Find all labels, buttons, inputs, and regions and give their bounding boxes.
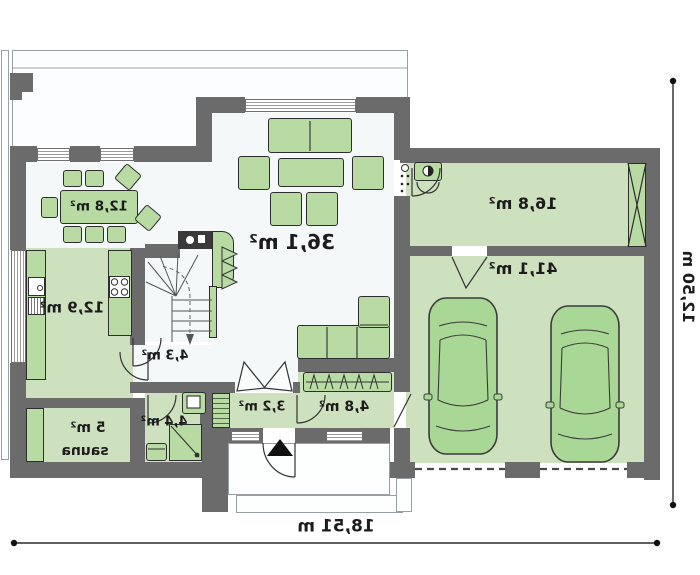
depth-dimension-label: 12,50 m bbox=[680, 251, 696, 324]
wall-bottom-corner bbox=[627, 462, 660, 478]
wall-kitchen-sauna bbox=[10, 398, 135, 408]
window-left-wall bbox=[11, 250, 26, 363]
shower bbox=[169, 424, 202, 461]
wall-living-top bbox=[356, 97, 410, 113]
stair-rail bbox=[209, 286, 217, 338]
wall-utility-garage bbox=[406, 246, 452, 256]
hall-area-label: 4,3 m² bbox=[142, 350, 189, 363]
attic-ladder bbox=[628, 163, 646, 247]
dining-chair bbox=[41, 197, 58, 218]
sauna-bench bbox=[26, 408, 44, 462]
dining-chair bbox=[63, 170, 82, 187]
wall-utility-garage bbox=[487, 246, 644, 256]
boiler bbox=[414, 162, 442, 181]
stairwell-floor bbox=[145, 248, 212, 342]
dining-chair bbox=[107, 226, 126, 243]
garage-floor bbox=[406, 256, 644, 463]
window-dining-2 bbox=[100, 148, 134, 161]
toilet bbox=[146, 443, 167, 461]
wall-bottom bbox=[390, 462, 415, 478]
terrace-corner-block bbox=[10, 73, 33, 92]
armchair bbox=[306, 192, 338, 226]
window-living bbox=[245, 99, 356, 112]
floor-plan: 12,8 m² 36,1 m² 12,9 m² 16,8 m² 41,1 m² … bbox=[0, 0, 700, 575]
sauna-area-label: 5 m² bbox=[70, 421, 105, 435]
armchair bbox=[270, 192, 302, 226]
armchair bbox=[238, 156, 270, 190]
wall-right-exterior bbox=[644, 148, 660, 480]
porch-step bbox=[236, 495, 403, 513]
wardrobe bbox=[303, 372, 392, 392]
wall-entry-stub bbox=[293, 382, 300, 393]
wall-porch-left bbox=[202, 428, 228, 512]
washbasin bbox=[182, 392, 206, 414]
wall-dining-top bbox=[70, 146, 100, 162]
front-door-opening bbox=[263, 428, 295, 443]
terrace-corner-block bbox=[10, 92, 22, 100]
porch-side-step bbox=[396, 478, 412, 512]
bathroom-area-label: 4,4 m² bbox=[141, 416, 188, 429]
armchair bbox=[352, 156, 384, 190]
wall-living-right bbox=[394, 428, 410, 463]
wall-sauna-bath bbox=[130, 398, 145, 462]
wall-stairs-left bbox=[130, 248, 145, 345]
entry-area-label: 3,2 m² bbox=[239, 401, 286, 414]
wall-garage-door-pier bbox=[505, 462, 540, 478]
dining-chair bbox=[85, 226, 104, 243]
corridor-area-label: 4,8 m² bbox=[319, 400, 369, 414]
sauna-name-label: sauna bbox=[61, 444, 108, 458]
kitchen-sink bbox=[28, 277, 45, 296]
width-dimension-label: 18,51 m bbox=[297, 519, 374, 536]
wall-left-lower bbox=[10, 363, 26, 478]
wall-living-top bbox=[196, 97, 245, 113]
wall-living-right bbox=[394, 196, 410, 392]
coffee-table bbox=[278, 158, 344, 187]
kitchen-area-label: 12,9 m² bbox=[40, 301, 104, 316]
living-area-label: 36,1 m² bbox=[249, 232, 335, 252]
wall-dining-top bbox=[10, 146, 37, 162]
dining-chair bbox=[63, 226, 82, 243]
stove bbox=[109, 276, 130, 298]
wall-hall-bath bbox=[130, 382, 235, 393]
dining-area-label: 12,8 m² bbox=[70, 200, 128, 214]
side-deck bbox=[1, 50, 9, 460]
fireplace bbox=[178, 231, 212, 249]
fireplace-hearth bbox=[212, 231, 234, 288]
wall-stairs-top bbox=[145, 244, 180, 258]
corner-sofa bbox=[358, 296, 390, 328]
garage-area-label: 41,1 m² bbox=[489, 261, 558, 277]
dining-chair bbox=[85, 170, 104, 187]
wall-living-corridor bbox=[298, 358, 394, 372]
utility-area-label: 16,8 m² bbox=[489, 196, 558, 212]
wall-bottom bbox=[10, 462, 203, 478]
window-entry-2 bbox=[326, 431, 363, 442]
wall-garage-top bbox=[400, 148, 660, 163]
sofa bbox=[268, 118, 352, 153]
corner-sofa bbox=[297, 325, 390, 359]
entry-porch bbox=[228, 443, 390, 495]
window-dining-1 bbox=[37, 148, 70, 161]
entry-cabinet bbox=[212, 393, 230, 428]
window-entry-1 bbox=[231, 431, 260, 442]
